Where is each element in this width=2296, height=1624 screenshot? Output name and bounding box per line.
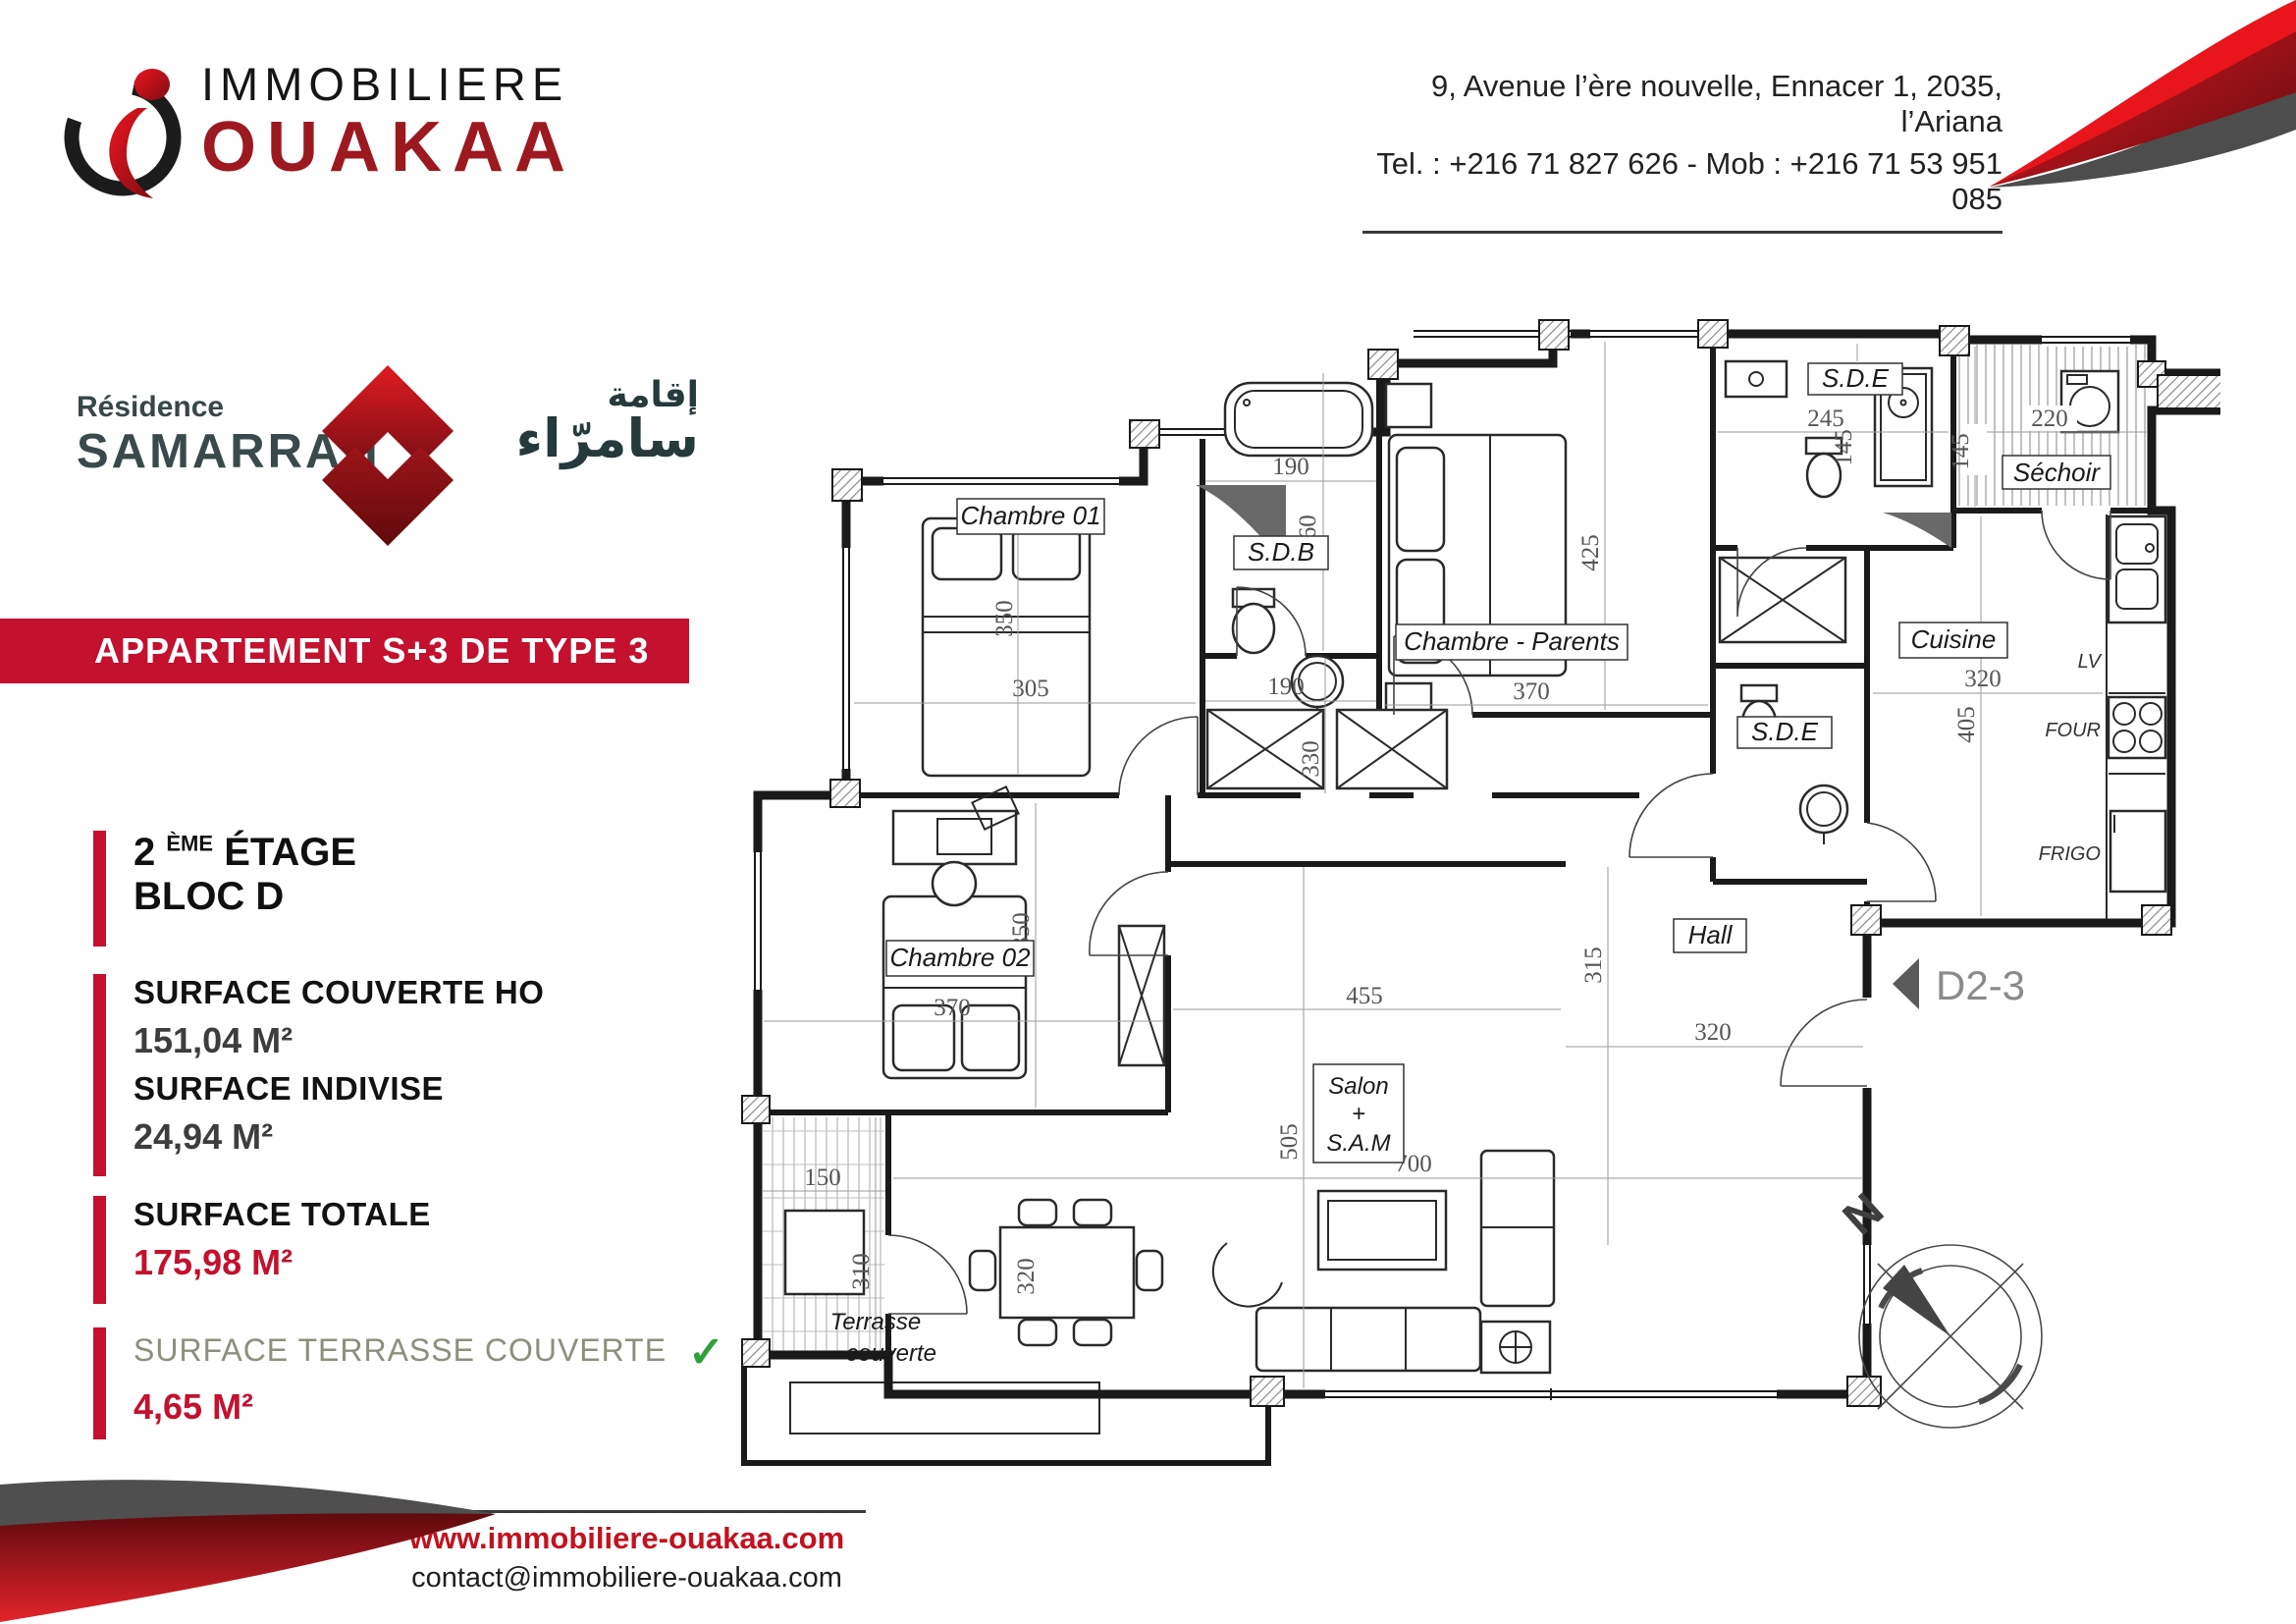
dim-cuisine-h: 405 xyxy=(1953,706,1980,743)
dim-sechoir-h: 145 xyxy=(1948,433,1974,470)
kitchen-niche-shadow xyxy=(1883,513,1951,548)
dim-salon-h: 505 xyxy=(1276,1123,1303,1161)
company-logo-icon xyxy=(57,47,194,214)
wardrobe-corridor-2 xyxy=(1337,710,1447,788)
label-terrasse-2: couverte xyxy=(846,1340,936,1367)
dim-chambre01-h: 350 xyxy=(991,600,1018,637)
residence-arabic-bottom: سامرّاء xyxy=(463,407,699,469)
label-frigo: FRIGO xyxy=(2039,843,2101,865)
label-parents: Chambre - Parents xyxy=(1404,626,1620,656)
floor-number: 2 xyxy=(133,831,155,874)
dim-sechoir-w: 220 xyxy=(2031,406,2068,432)
label-four: FOUR xyxy=(2045,720,2101,741)
label-chambre01: Chambre 01 xyxy=(960,501,1100,530)
surface-label: SURFACE TERRASSE COUVERTE✓ xyxy=(133,1327,725,1378)
red-bar xyxy=(93,831,106,947)
label-salon-1: Salon xyxy=(1328,1073,1388,1100)
company-name: IMMOBILIERE OUAKAA xyxy=(201,57,576,188)
label-lv: LV xyxy=(2078,651,2103,673)
surface-label: SURFACE INDIVISE xyxy=(133,1070,444,1108)
bloc-line: BLOC D xyxy=(133,875,356,919)
coffee-table xyxy=(1318,1191,1446,1270)
window-chambre02-left xyxy=(751,852,765,990)
label-salon-3: S.A.M xyxy=(1326,1130,1390,1157)
dim-terrasse-w: 150 xyxy=(804,1164,841,1191)
contact-address-block: 9, Avenue l’ère nouvelle, Ennacer 1, 203… xyxy=(1362,69,2002,234)
surface-value: 151,04 M² xyxy=(133,1020,544,1061)
sink-sde-mid xyxy=(1800,785,1847,844)
desk-chambre02 xyxy=(893,786,1019,905)
bed-chambre02 xyxy=(883,896,1026,1078)
surface-couverte-item: SURFACE COUVERTE HO 151,04 M² xyxy=(93,974,544,1080)
brochure-page: IMMOBILIERE OUAKAA 9, Avenue l’ère nouve… xyxy=(0,0,2296,1624)
window-sechoir-top xyxy=(2042,333,2130,347)
section-marker: D2-3 xyxy=(1893,958,2025,1009)
sink-sde-top xyxy=(1726,361,1787,397)
bottom-decoration xyxy=(0,1473,510,1624)
dim-parents-w: 370 xyxy=(1513,678,1550,705)
label-cuisine: Cuisine xyxy=(1911,624,1997,654)
appliance-labels: LV FOUR FRIGO xyxy=(2039,651,2103,865)
address-line: 9, Avenue l’ère nouvelle, Ennacer 1, 203… xyxy=(1362,69,2002,139)
window-chambre01-top xyxy=(883,474,1119,488)
red-bar xyxy=(93,974,106,1080)
label-sechoir: Séchoir xyxy=(2013,458,2101,487)
bathtub-sdb xyxy=(1225,383,1372,456)
surface-label: SURFACE TOTALE xyxy=(133,1196,431,1233)
surface-value: 24,94 M² xyxy=(133,1116,444,1158)
bed-chambre01 xyxy=(923,518,1090,776)
window-salon-bottom xyxy=(1325,1387,1777,1401)
surface-value: 4,65 M² xyxy=(133,1386,725,1428)
surface-label-text: SURFACE TERRASSE COUVERTE xyxy=(133,1332,667,1368)
label-hall: Hall xyxy=(1688,920,1734,949)
dim-terrasse-h: 310 xyxy=(848,1253,875,1290)
surface-terrasse-item: SURFACE TERRASSE COUVERTE✓ 4,65 M² xyxy=(93,1327,725,1439)
dim-chambre01-w: 305 xyxy=(1012,676,1049,702)
dim-table-l: 320 xyxy=(1013,1258,1040,1295)
label-sde-mid: S.D.E xyxy=(1751,717,1819,746)
floor-word: ÉTAGE xyxy=(224,831,356,874)
checkmark-icon: ✓ xyxy=(688,1328,725,1377)
dining-table xyxy=(970,1200,1162,1345)
company-name-line1: IMMOBILIERE xyxy=(201,57,576,111)
porch-outline xyxy=(744,1355,1268,1463)
floor-ordinal: ÈME xyxy=(166,832,213,856)
surface-value: 175,98 M² xyxy=(133,1242,431,1283)
dim-cuisine-w: 320 xyxy=(1964,666,2002,692)
dim-corridor-w2: 455 xyxy=(1346,983,1383,1009)
residence-arabic-name: إقامة سامرّاء xyxy=(463,375,699,469)
toilet-sdb xyxy=(1233,589,1274,653)
dim-sdb-w: 190 xyxy=(1272,454,1309,480)
surface-label: SURFACE COUVERTE HO xyxy=(133,974,544,1011)
red-bar xyxy=(93,1070,106,1176)
red-bar xyxy=(93,1327,106,1439)
dim-hall-w: 320 xyxy=(1694,1019,1732,1046)
apartment-type-title: APPARTEMENT S+3 DE TYPE 3 xyxy=(0,619,689,683)
dim-sde-top-w: 245 xyxy=(1807,406,1844,432)
kitchen-counter xyxy=(2107,514,2165,919)
dim-parents-h: 425 xyxy=(1577,534,1604,571)
surface-indivise-item: SURFACE INDIVISE 24,94 M² xyxy=(93,1070,444,1176)
window-chambre01-left xyxy=(839,548,853,769)
section-marker-text: D2-3 xyxy=(1936,962,2025,1008)
label-terrasse-1: Terrasse xyxy=(830,1309,921,1335)
label-sdb: S.D.B xyxy=(1248,537,1314,567)
label-sde-top: S.D.E xyxy=(1822,363,1890,393)
label-salon-2: + xyxy=(1352,1101,1365,1127)
phone-line: Tel. : +216 71 827 626 - Mob : +216 71 5… xyxy=(1362,146,2002,217)
dim-corridor-h: 330 xyxy=(1298,740,1324,778)
dim-hall-h: 315 xyxy=(1580,947,1607,984)
bed-parents xyxy=(1386,384,1566,727)
dim-sde-top-h: 145 xyxy=(1831,429,1857,466)
company-name-line2: OUAKAA xyxy=(201,107,576,188)
red-bar xyxy=(93,1196,106,1304)
residence-logo-icon xyxy=(314,357,461,554)
armchair xyxy=(1213,1243,1282,1307)
label-chambre02: Chambre 02 xyxy=(889,943,1031,972)
wardrobe-chambre02 xyxy=(1119,926,1164,1065)
compass-north-label: N xyxy=(1834,1184,1894,1246)
apartment-type-banner: APPARTEMENT S+3 DE TYPE 3 xyxy=(0,619,689,683)
surface-totale-item: SURFACE TOTALE 175,98 M² xyxy=(93,1196,431,1304)
floor-info: 2 ÈME ÉTAGE BLOC D xyxy=(93,831,356,947)
dim-corridor-w: 190 xyxy=(1267,674,1305,700)
entry-opening xyxy=(1861,998,1873,1088)
dim-chambre02-w: 370 xyxy=(934,995,971,1021)
floor-line: 2 ÈME ÉTAGE xyxy=(133,831,356,875)
floorplan-drawing: 350 305 190 260 190 330 425 370 245 145 … xyxy=(736,224,2220,1492)
